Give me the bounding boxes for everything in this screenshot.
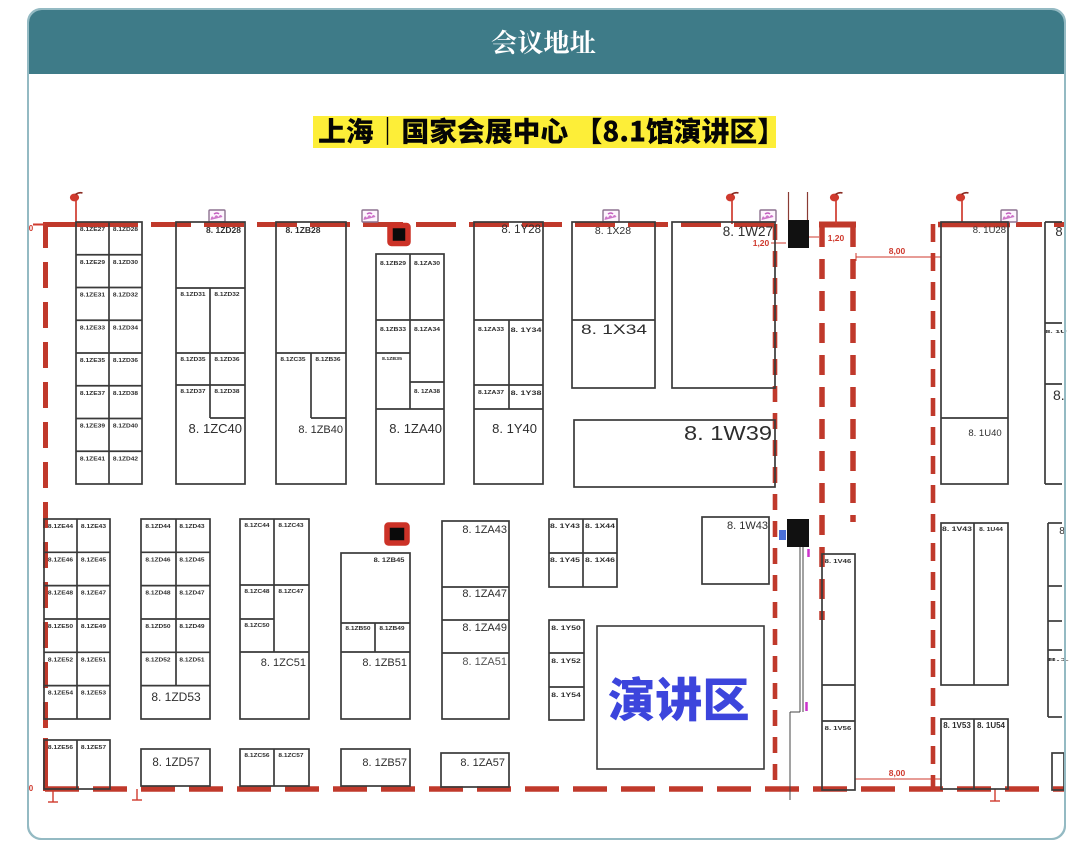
svg-text:8.1ZE53: 8.1ZE53: [81, 691, 106, 697]
svg-text:1,20: 1,20: [828, 233, 845, 243]
svg-text:8. 1ZC40: 8. 1ZC40: [189, 421, 242, 436]
svg-text:8.1ZC56: 8.1ZC56: [244, 753, 269, 759]
svg-text:8. 1Y45: 8. 1Y45: [550, 557, 581, 564]
svg-text:8.1ZB33: 8.1ZB33: [380, 327, 406, 333]
svg-text:8. 1ZB40: 8. 1ZB40: [298, 424, 343, 436]
svg-text:8.1ZA34: 8.1ZA34: [414, 327, 441, 333]
svg-text:8.1ZA33: 8.1ZA33: [478, 327, 504, 333]
svg-text:8. 1ZA47: 8. 1ZA47: [462, 588, 507, 600]
svg-text:8. 1Y52: 8. 1Y52: [551, 658, 581, 665]
svg-text:8. 1V43: 8. 1V43: [942, 526, 973, 533]
svg-text:8. 1ZB45: 8. 1ZB45: [374, 557, 405, 564]
svg-text:8. 1ZB57: 8. 1ZB57: [362, 757, 407, 769]
svg-text:8.1ZD28: 8.1ZD28: [113, 227, 138, 233]
svg-text:8. 1ZB28: 8. 1ZB28: [286, 225, 321, 235]
svg-text:8.1ZE33: 8.1ZE33: [80, 325, 105, 331]
svg-text:8.1ZE48: 8.1ZE48: [48, 591, 73, 597]
svg-text:8.1ZC48: 8.1ZC48: [244, 589, 269, 595]
svg-text:8.1ZC44: 8.1ZC44: [244, 523, 269, 529]
svg-text:8. 1ZD53: 8. 1ZD53: [151, 690, 201, 704]
svg-text:8. 1U44: 8. 1U44: [979, 527, 1003, 533]
svg-text:8. 1Y38: 8. 1Y38: [511, 390, 542, 397]
svg-text:8. 1V46: 8. 1V46: [825, 559, 852, 565]
svg-text:8. 1Y54: 8. 1Y54: [551, 692, 581, 699]
svg-text:8.1ZD36: 8.1ZD36: [214, 357, 239, 363]
svg-text:8.1ZA30: 8.1ZA30: [414, 261, 440, 267]
svg-text:8. 1ZA38: 8. 1ZA38: [414, 389, 440, 395]
svg-text:8. 1ZB51: 8. 1ZB51: [362, 657, 407, 669]
svg-text:8. 1ZD57: 8. 1ZD57: [152, 757, 199, 769]
svg-text:8.1ZE49: 8.1ZE49: [81, 624, 106, 630]
svg-text:8.1ZD38: 8.1ZD38: [214, 389, 239, 395]
svg-text:8.1ZC47: 8.1ZC47: [278, 589, 303, 595]
svg-text:8. 1W27: 8. 1W27: [723, 224, 773, 239]
svg-text:8. 1Y50: 8. 1Y50: [551, 625, 581, 632]
svg-text:8.1ZB49: 8.1ZB49: [379, 626, 404, 632]
svg-text:8.1ZD34: 8.1ZD34: [113, 325, 138, 331]
svg-text:8.1ZC43: 8.1ZC43: [278, 523, 303, 529]
svg-text:8. 1U28: 8. 1U28: [973, 225, 1006, 236]
svg-text:8.1ZE54: 8.1ZE54: [48, 691, 73, 697]
svg-text:8.1ZB36: 8.1ZB36: [315, 357, 340, 363]
svg-text:8.1ZD43: 8.1ZD43: [179, 524, 204, 530]
svg-text:8.: 8.: [1053, 387, 1065, 403]
svg-text:8. 1V53: 8. 1V53: [943, 721, 971, 730]
svg-text:8. 1W43: 8. 1W43: [727, 520, 768, 532]
svg-text:8.1ZD32: 8.1ZD32: [214, 292, 239, 298]
svg-text:8.1ZE57: 8.1ZE57: [81, 745, 106, 751]
svg-text:8. 1ZA40: 8. 1ZA40: [389, 421, 442, 436]
svg-text:8. 1ZC51: 8. 1ZC51: [261, 657, 306, 669]
svg-text:8.1ZE29: 8.1ZE29: [80, 260, 105, 266]
svg-text:8.1ZE45: 8.1ZE45: [81, 557, 106, 563]
svg-text:8. 1Y34: 8. 1Y34: [511, 327, 542, 334]
svg-text:8. 1X46: 8. 1X46: [585, 557, 616, 564]
svg-text:8.1ZE27: 8.1ZE27: [80, 227, 105, 233]
svg-text:8. 1ZA57: 8. 1ZA57: [460, 757, 505, 769]
svg-text:8. 1X44: 8. 1X44: [585, 523, 616, 530]
svg-text:1,20: 1,20: [753, 238, 770, 248]
svg-text:8.1ZD49: 8.1ZD49: [179, 624, 204, 630]
svg-text:8. 1ZD28: 8. 1ZD28: [206, 225, 241, 235]
svg-text:8. 1U: 8. 1U: [1045, 329, 1066, 334]
svg-text:8.1ZE43: 8.1ZE43: [81, 524, 106, 530]
svg-text:8. 1Y43: 8. 1Y43: [550, 523, 581, 530]
svg-text:8.1ZD40: 8.1ZD40: [113, 424, 138, 430]
svg-text:8.1ZE51: 8.1ZE51: [81, 657, 106, 663]
svg-text:8. 1ZA51: 8. 1ZA51: [462, 656, 507, 668]
svg-text:8.1ZC57: 8.1ZC57: [278, 753, 303, 759]
svg-text:8. 1ZA49: 8. 1ZA49: [462, 622, 507, 634]
svg-text:8. 1U54: 8. 1U54: [977, 721, 1006, 730]
svg-text:8.1ZB35: 8.1ZB35: [382, 356, 403, 361]
svg-text:8.1ZD45: 8.1ZD45: [179, 557, 204, 563]
svg-text:8. 1V56: 8. 1V56: [825, 726, 852, 732]
svg-text:8.1ZE37: 8.1ZE37: [80, 391, 105, 397]
svg-text:8.1ZD36: 8.1ZD36: [113, 358, 138, 364]
svg-text:8: 8: [1055, 224, 1062, 239]
svg-text:8.1ZE35: 8.1ZE35: [80, 358, 105, 364]
svg-text:8.1ZD52: 8.1ZD52: [145, 657, 170, 663]
svg-text:8,00: 8,00: [889, 768, 906, 778]
svg-text:8.1ZE44: 8.1ZE44: [48, 524, 73, 530]
svg-text:8.1ZE50: 8.1ZE50: [48, 624, 73, 630]
svg-text:8.1ZD30: 8.1ZD30: [113, 260, 138, 266]
svg-text:8.1ZD31: 8.1ZD31: [180, 292, 205, 298]
svg-text:0: 0: [29, 784, 34, 793]
svg-text:8. 1ZA43: 8. 1ZA43: [462, 524, 507, 536]
svg-text:8.1ZD48: 8.1ZD48: [145, 591, 170, 597]
svg-text:8.1ZD42: 8.1ZD42: [113, 456, 138, 462]
svg-text:8.1ZC50: 8.1ZC50: [244, 623, 269, 629]
svg-text:8. 1Y40: 8. 1Y40: [492, 421, 537, 436]
svg-text:8.1ZD44: 8.1ZD44: [145, 524, 170, 530]
svg-text:8.1ZD32: 8.1ZD32: [113, 293, 138, 299]
svg-text:8. 1X28: 8. 1X28: [595, 225, 631, 237]
svg-text:8.1ZE56: 8.1ZE56: [48, 745, 73, 751]
svg-text:8.1ZD51: 8.1ZD51: [179, 657, 204, 663]
svg-text:8.1ZE47: 8.1ZE47: [81, 591, 106, 597]
svg-text:8.1ZE39: 8.1ZE39: [80, 424, 105, 430]
svg-text:8.1ZE52: 8.1ZE52: [48, 657, 73, 663]
svg-text:8.1ZD37: 8.1ZD37: [180, 389, 205, 395]
svg-text:8. 1U40: 8. 1U40: [968, 428, 1001, 439]
svg-text:8.1ZE31: 8.1ZE31: [80, 293, 105, 299]
svg-text:8.1ZD46: 8.1ZD46: [145, 557, 170, 563]
svg-text:8. 1W39: 8. 1W39: [684, 423, 772, 445]
svg-text:8.1ZC35: 8.1ZC35: [280, 357, 305, 363]
svg-text:8.1ZD47: 8.1ZD47: [179, 591, 204, 597]
svg-text:8.1ZB29: 8.1ZB29: [380, 261, 406, 267]
svg-text:8.1ZD38: 8.1ZD38: [113, 391, 138, 397]
svg-text:8.1: 8.1: [1047, 657, 1070, 662]
svg-text:8.1ZD50: 8.1ZD50: [145, 624, 170, 630]
svg-text:8.1ZB50: 8.1ZB50: [345, 626, 370, 632]
svg-text:8.1ZA37: 8.1ZA37: [478, 390, 504, 396]
svg-text:0: 0: [29, 224, 34, 233]
svg-text:8.1ZE41: 8.1ZE41: [80, 456, 105, 462]
svg-text:8,00: 8,00: [889, 246, 906, 256]
svg-text:8. 1X34: 8. 1X34: [581, 321, 647, 337]
svg-text:8.1ZD35: 8.1ZD35: [180, 357, 205, 363]
svg-text:8.1ZE46: 8.1ZE46: [48, 557, 73, 563]
svg-text:8. 1Y28: 8. 1Y28: [501, 224, 541, 236]
